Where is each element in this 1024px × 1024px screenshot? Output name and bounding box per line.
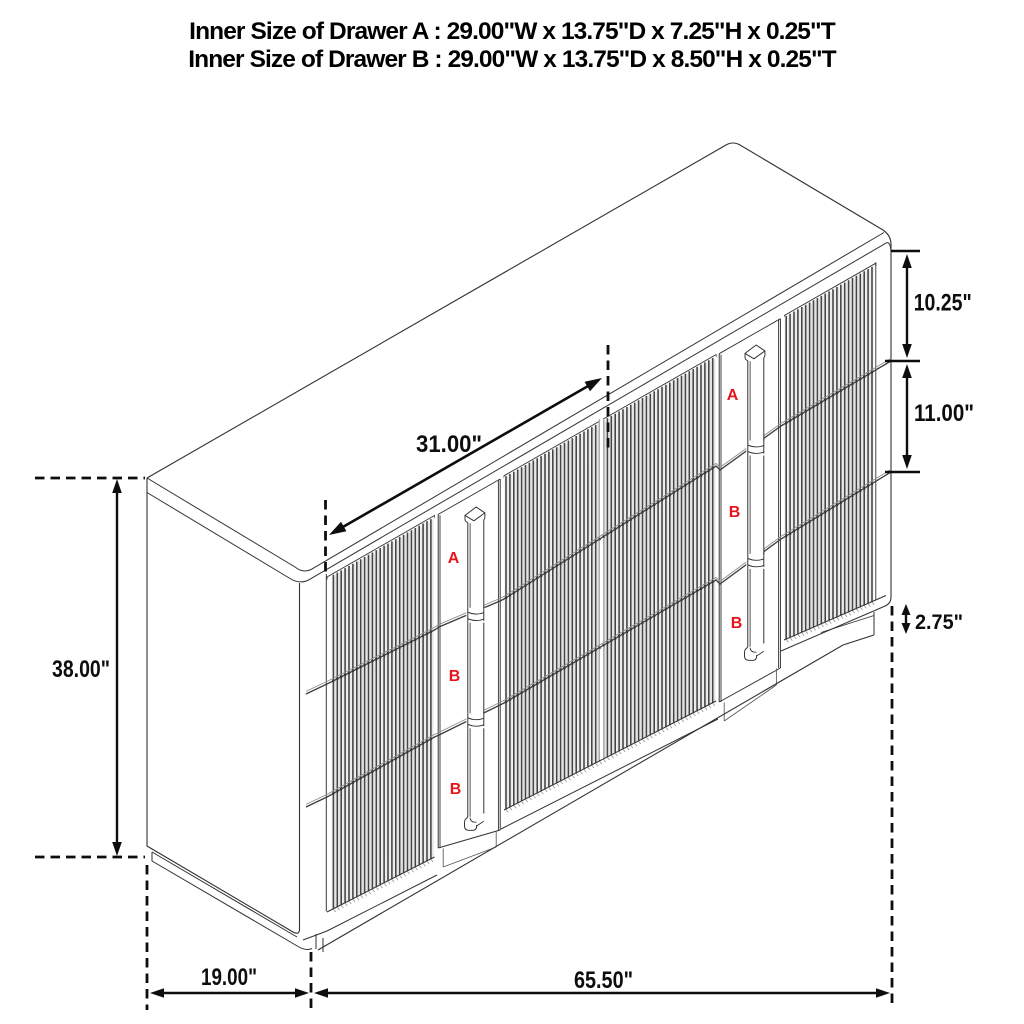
svg-text:A: A bbox=[448, 550, 460, 567]
svg-text:B: B bbox=[449, 668, 461, 685]
svg-text:38.00": 38.00" bbox=[52, 656, 110, 683]
svg-text:2.75": 2.75" bbox=[915, 610, 963, 634]
svg-text:19.00": 19.00" bbox=[201, 964, 257, 991]
svg-text:10.25": 10.25" bbox=[914, 289, 972, 316]
svg-text:A: A bbox=[727, 387, 739, 404]
svg-text:11.00": 11.00" bbox=[914, 400, 974, 427]
svg-text:B: B bbox=[450, 781, 462, 798]
svg-text:B: B bbox=[731, 615, 743, 632]
svg-text:B: B bbox=[729, 504, 741, 521]
svg-text:31.00": 31.00" bbox=[416, 431, 482, 458]
svg-text:65.50": 65.50" bbox=[574, 967, 633, 994]
